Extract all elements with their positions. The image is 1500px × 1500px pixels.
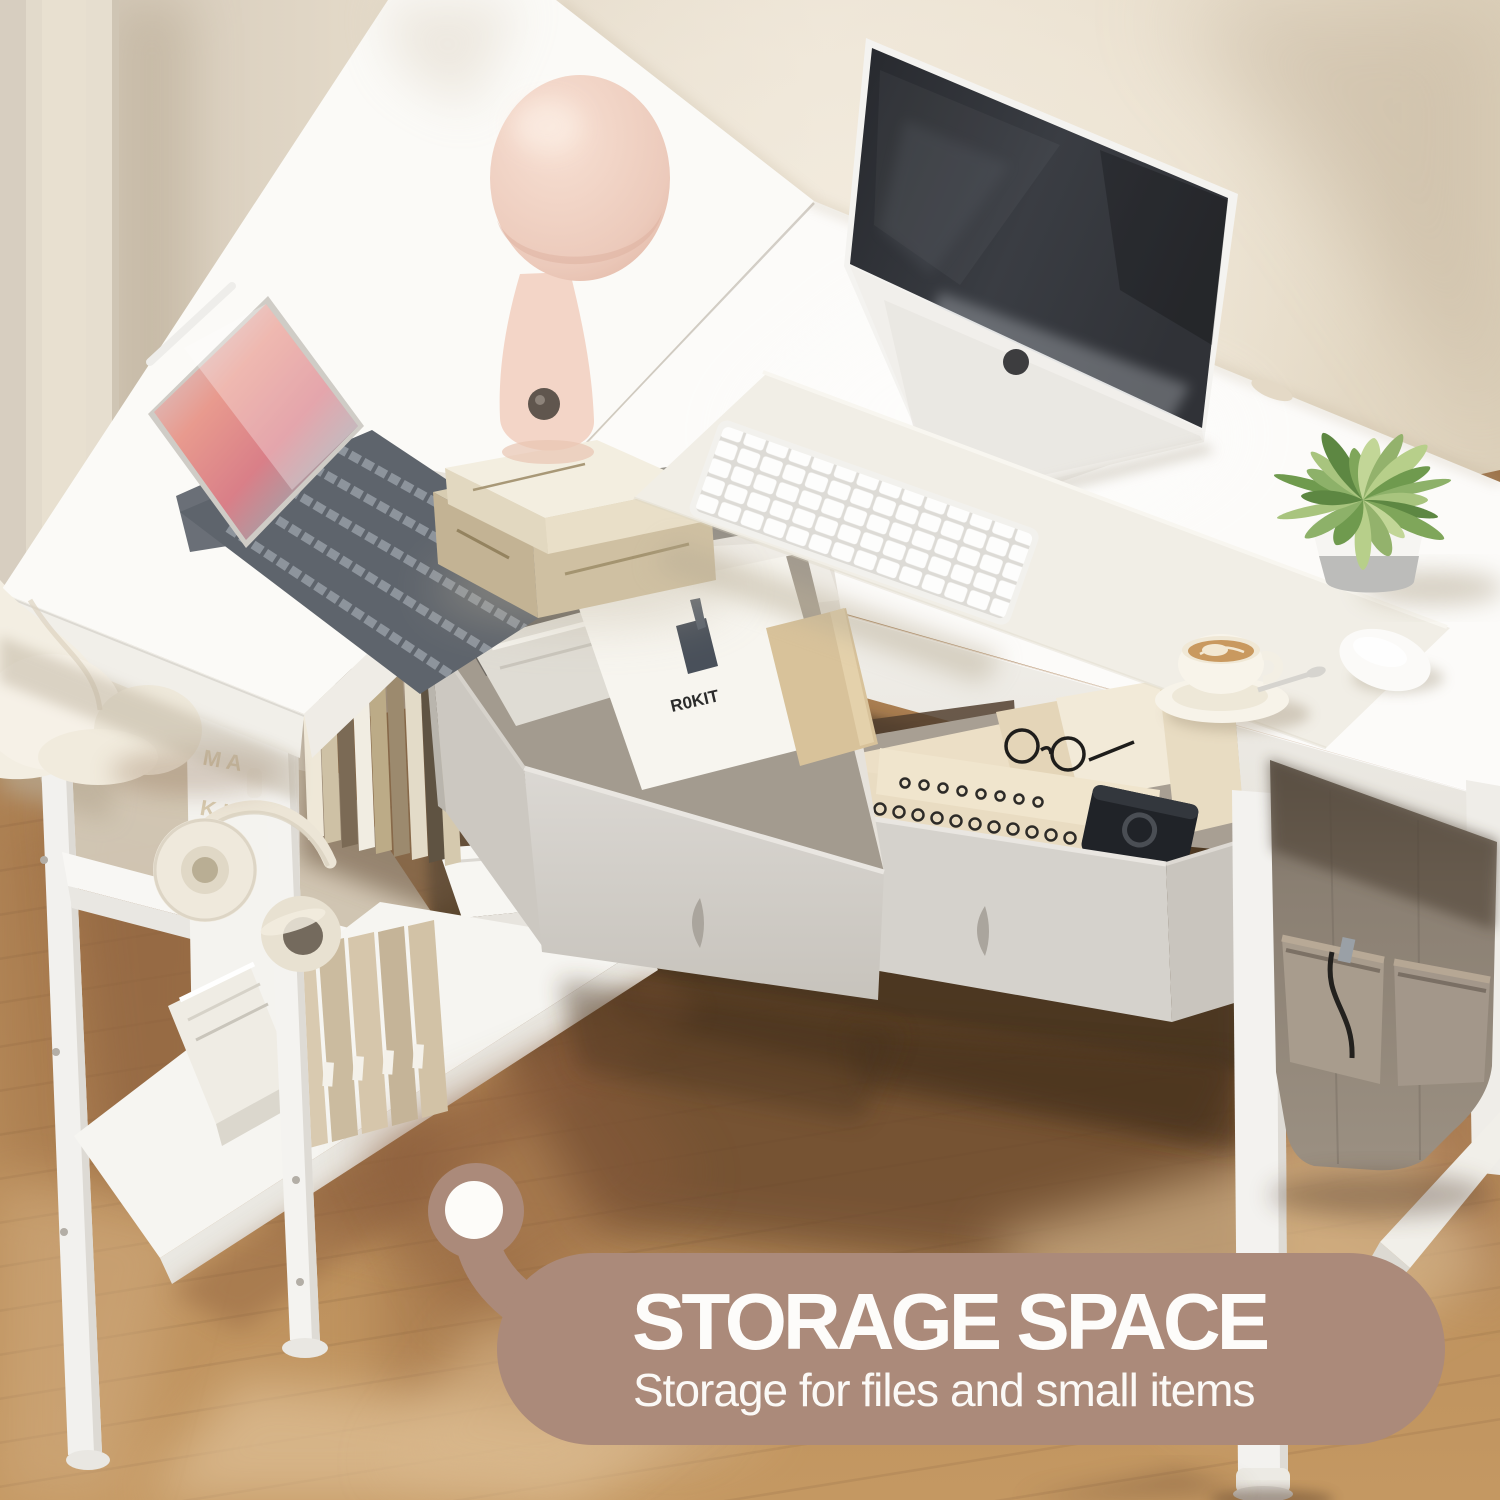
- svg-text:Storage for files and small it: Storage for files and small items: [633, 1364, 1255, 1416]
- svg-text:STORAGE SPACE: STORAGE SPACE: [632, 1277, 1268, 1366]
